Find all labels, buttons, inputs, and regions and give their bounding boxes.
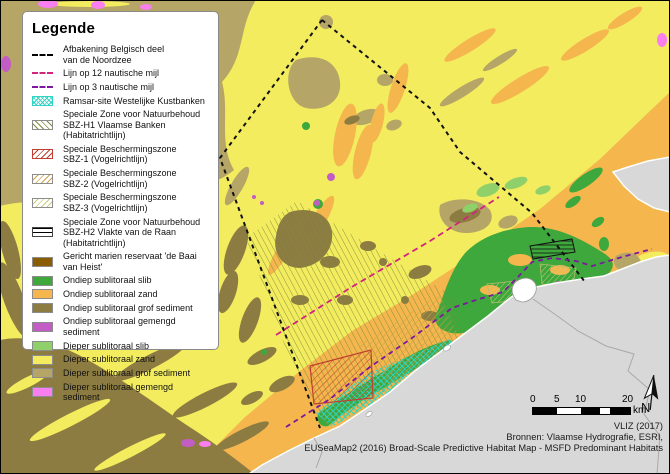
legend-item: Lijn op 3 nautische mijl (32, 82, 209, 93)
sbz-2-swatch (32, 174, 53, 184)
legend-item: Speciale Beschermingszone SBZ-3 (Vogelri… (32, 192, 209, 213)
legend-item: Ondiep sublitoraal grof sediment (32, 303, 209, 314)
dieper-gemengd-swatch (32, 387, 53, 397)
eez-line-symbol (32, 54, 53, 56)
sbz-h1-swatch (32, 120, 53, 130)
legend-item: Dieper sublitoraal grof sediment (32, 368, 209, 379)
legend-item: Dieper sublitoraal gemengd sediment (32, 382, 209, 403)
legend-item: Speciale Zone voor Natuurbehoud SBZ-H2 V… (32, 217, 209, 249)
legend-item: Ondiep sublitoraal slib (32, 275, 209, 286)
sbz-1-swatch (32, 149, 53, 159)
dieper-slib-swatch (32, 341, 53, 351)
legend-item: Afbakening Belgisch deel van de Noordzee (32, 44, 209, 65)
ondiep-slib-swatch (32, 276, 53, 286)
scale-tick: 5 (554, 394, 560, 405)
ramsar-swatch (32, 96, 53, 106)
scale-tick: 10 (575, 394, 586, 405)
ondiep-gemengd-swatch (32, 322, 53, 332)
map-export: Legende Afbakening Belgisch deel van de … (0, 0, 670, 474)
legend-item: Speciale Zone voor Natuurbehoud SBZ-H1 V… (32, 109, 209, 141)
ondiep-zand-swatch (32, 289, 53, 299)
scale-tick: 0 (530, 394, 536, 405)
3nm-line-symbol (32, 86, 53, 88)
dieper-zand-swatch (32, 355, 53, 365)
legend-item: Ramsar-site Westelijke Kustbanken (32, 96, 209, 107)
sbz-3-swatch (32, 198, 53, 208)
scale-bar-segments (532, 407, 631, 415)
legend-item: Lijn op 12 nautische mijl (32, 68, 209, 79)
legend-item: Ondiep sublitoraal zand (32, 289, 209, 300)
ondiep-grof-swatch (32, 303, 53, 313)
map-credits: VLIZ (2017) Bronnen: Vlaamse Hydrografie… (243, 421, 663, 453)
credit-line: Bronnen: Vlaamse Hydrografie, ESRI, (243, 432, 663, 443)
reservaat-swatch (32, 257, 53, 267)
legend-item: Speciale Beschermingszone SBZ-2 (Vogelri… (32, 168, 209, 189)
legend-item: Speciale Beschermingszone SBZ-1 (Vogelri… (32, 144, 209, 165)
credit-line: EUSeaMap2 (2016) Broad-Scale Predictive … (243, 443, 663, 454)
dieper-grof-swatch (32, 368, 53, 378)
legend-item: Gericht marien reservaat 'de Baai van He… (32, 251, 209, 272)
scale-bar: 0 5 10 20 km (528, 394, 648, 424)
scale-tick: 20 (622, 394, 633, 405)
legend-title: Legende (32, 20, 209, 37)
legend-item: Ondiep sublitoraal gemengd sediment (32, 316, 209, 337)
12nm-line-symbol (32, 72, 53, 74)
north-label: N (641, 400, 650, 415)
legend-item: Dieper sublitoraal slib (32, 341, 209, 352)
north-arrow: N (640, 373, 664, 418)
sbz-h2-swatch (32, 227, 53, 237)
legend-panel: Legende Afbakening Belgisch deel van de … (22, 11, 219, 350)
legend-item: Dieper sublitoraal zand (32, 354, 209, 365)
credit-line: VLIZ (2017) (243, 421, 663, 432)
